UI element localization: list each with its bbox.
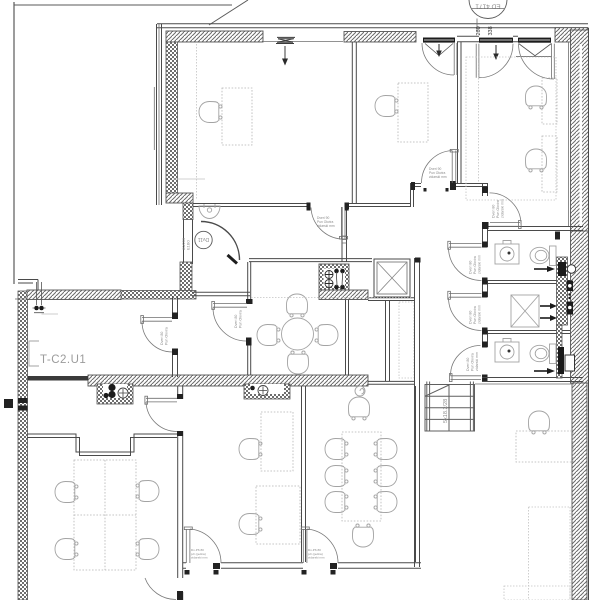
svg-text:Pun Okvira: Pun Okvira <box>496 200 500 218</box>
svg-text:Pun Okvira: Pun Okvira <box>473 256 477 274</box>
svg-text:Dv11: Dv11 <box>198 236 210 242</box>
svg-text:Dveri 80: Dveri 80 <box>469 311 473 324</box>
svg-text:Pun Okvira: Pun Okvira <box>471 353 475 371</box>
svg-text:Dveri 80: Dveri 80 <box>492 205 496 218</box>
svg-text:Pun Okvira: Pun Okvira <box>473 306 477 324</box>
svg-text:338: 338 <box>488 26 494 35</box>
svg-text:Pun Okvira: Pun Okvira <box>165 327 169 345</box>
svg-text:Dveri 80: Dveri 80 <box>160 332 164 345</box>
svg-text:T-C2.U1: T-C2.U1 <box>40 354 86 366</box>
svg-text:zidarski mm: zidarski mm <box>475 352 479 371</box>
svg-text:zidarski mm: zidarski mm <box>501 199 505 218</box>
svg-text:Dveri 80: Dveri 80 <box>234 315 238 328</box>
svg-text:260: 260 <box>476 26 482 35</box>
svg-text:zidarski mm: zidarski mm <box>478 255 482 274</box>
svg-text:Pun Okvira: Pun Okvira <box>239 310 243 328</box>
svg-text:5x18.2/28: 5x18.2/28 <box>443 399 449 423</box>
svg-text:E1B0: E1B0 <box>186 239 191 250</box>
svg-text:Dveri 80: Dveri 80 <box>466 358 470 371</box>
svg-text:Dveri 80: Dveri 80 <box>469 261 473 274</box>
svg-text:zidarski mm: zidarski mm <box>317 224 335 228</box>
svg-text:zidarski mm: zidarski mm <box>478 305 482 324</box>
svg-text:zidarski mm: zidarski mm <box>191 556 208 560</box>
svg-text:zidarski mm: zidarski mm <box>429 175 447 179</box>
svg-text:zidarski mm: zidarski mm <box>308 556 325 560</box>
